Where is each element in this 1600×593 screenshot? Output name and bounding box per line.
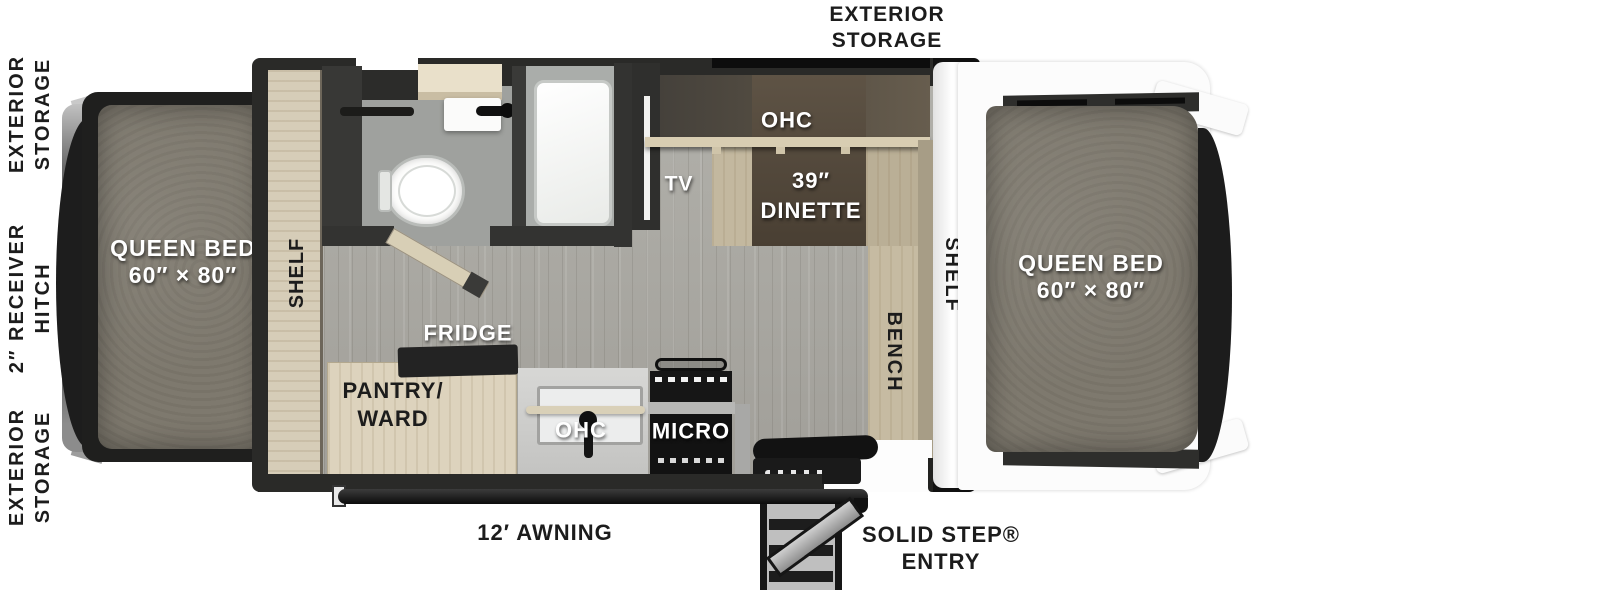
range-grab-rail — [655, 358, 727, 371]
toilet-tank — [378, 170, 392, 212]
overhead-cabinet-rail — [645, 137, 930, 147]
fridge-top — [398, 344, 519, 377]
frame-slot-2 — [1115, 98, 1185, 105]
range-trim-band — [648, 402, 735, 414]
range-knob-row — [655, 377, 727, 382]
right-bed-label: QUEEN BED 60″ × 80″ — [1018, 250, 1164, 304]
tv-mount-bracket — [644, 96, 650, 220]
right-wall-trim — [918, 140, 933, 462]
bathroom-right-wall — [614, 63, 632, 247]
label-exterior-storage-top: EXTERIOR STORAGE — [829, 2, 944, 54]
shower-divider-wall — [512, 66, 526, 228]
awning-label: 12′ AWNING — [477, 520, 612, 546]
range-cooktop — [650, 371, 732, 402]
bench-label: BENCH — [881, 311, 907, 392]
bathroom-vanity — [418, 64, 502, 100]
awning-roller — [338, 489, 868, 504]
tv-label: TV — [665, 171, 694, 198]
dinette-label: 39″ DINETTE — [760, 166, 861, 226]
range-side-panel — [735, 404, 750, 482]
rail-notch-3 — [841, 147, 850, 154]
ohc-dinette-label: OHC — [761, 107, 813, 134]
dinette-window — [712, 58, 930, 68]
fridge-label: FRIDGE — [423, 320, 512, 347]
floorplan-diagram: EXTERIOR STORAGE 2″ RECEIVER HITCH EXTER… — [0, 0, 1600, 593]
bathroom-bottom-wall-right — [490, 226, 632, 246]
bathroom-left-wall — [322, 66, 362, 228]
right-bed-tent-flap — [1198, 128, 1232, 462]
dinette-bench-left — [712, 147, 752, 246]
rail-notch-1 — [712, 147, 721, 154]
ohc-kitchen-label: OHC — [555, 417, 607, 444]
entry-label: SOLID STEP® ENTRY — [862, 521, 1020, 575]
bathroom-towel-bar — [340, 107, 414, 116]
pantry-label: PANTRY/ WARD — [342, 377, 443, 433]
rail-notch-2 — [776, 147, 785, 154]
bathroom-bottom-wall-left — [322, 226, 394, 246]
toilet-lid — [398, 165, 456, 217]
label-exterior-storage-left-bottom: EXTERIOR STORAGE — [4, 408, 56, 526]
left-bed-label: QUEEN BED 60″ × 80″ — [110, 235, 256, 289]
label-exterior-storage-left-top: EXTERIOR STORAGE — [4, 55, 56, 173]
bathroom-counter — [362, 70, 420, 100]
label-receiver-hitch: 2″ RECEIVER HITCH — [4, 223, 56, 374]
shelf-left-label: SHELF — [284, 238, 310, 309]
oven-vent-row — [658, 458, 724, 463]
shower-pan — [534, 80, 612, 226]
dinette-bench-right — [866, 147, 918, 246]
micro-label: MICRO — [652, 418, 730, 445]
